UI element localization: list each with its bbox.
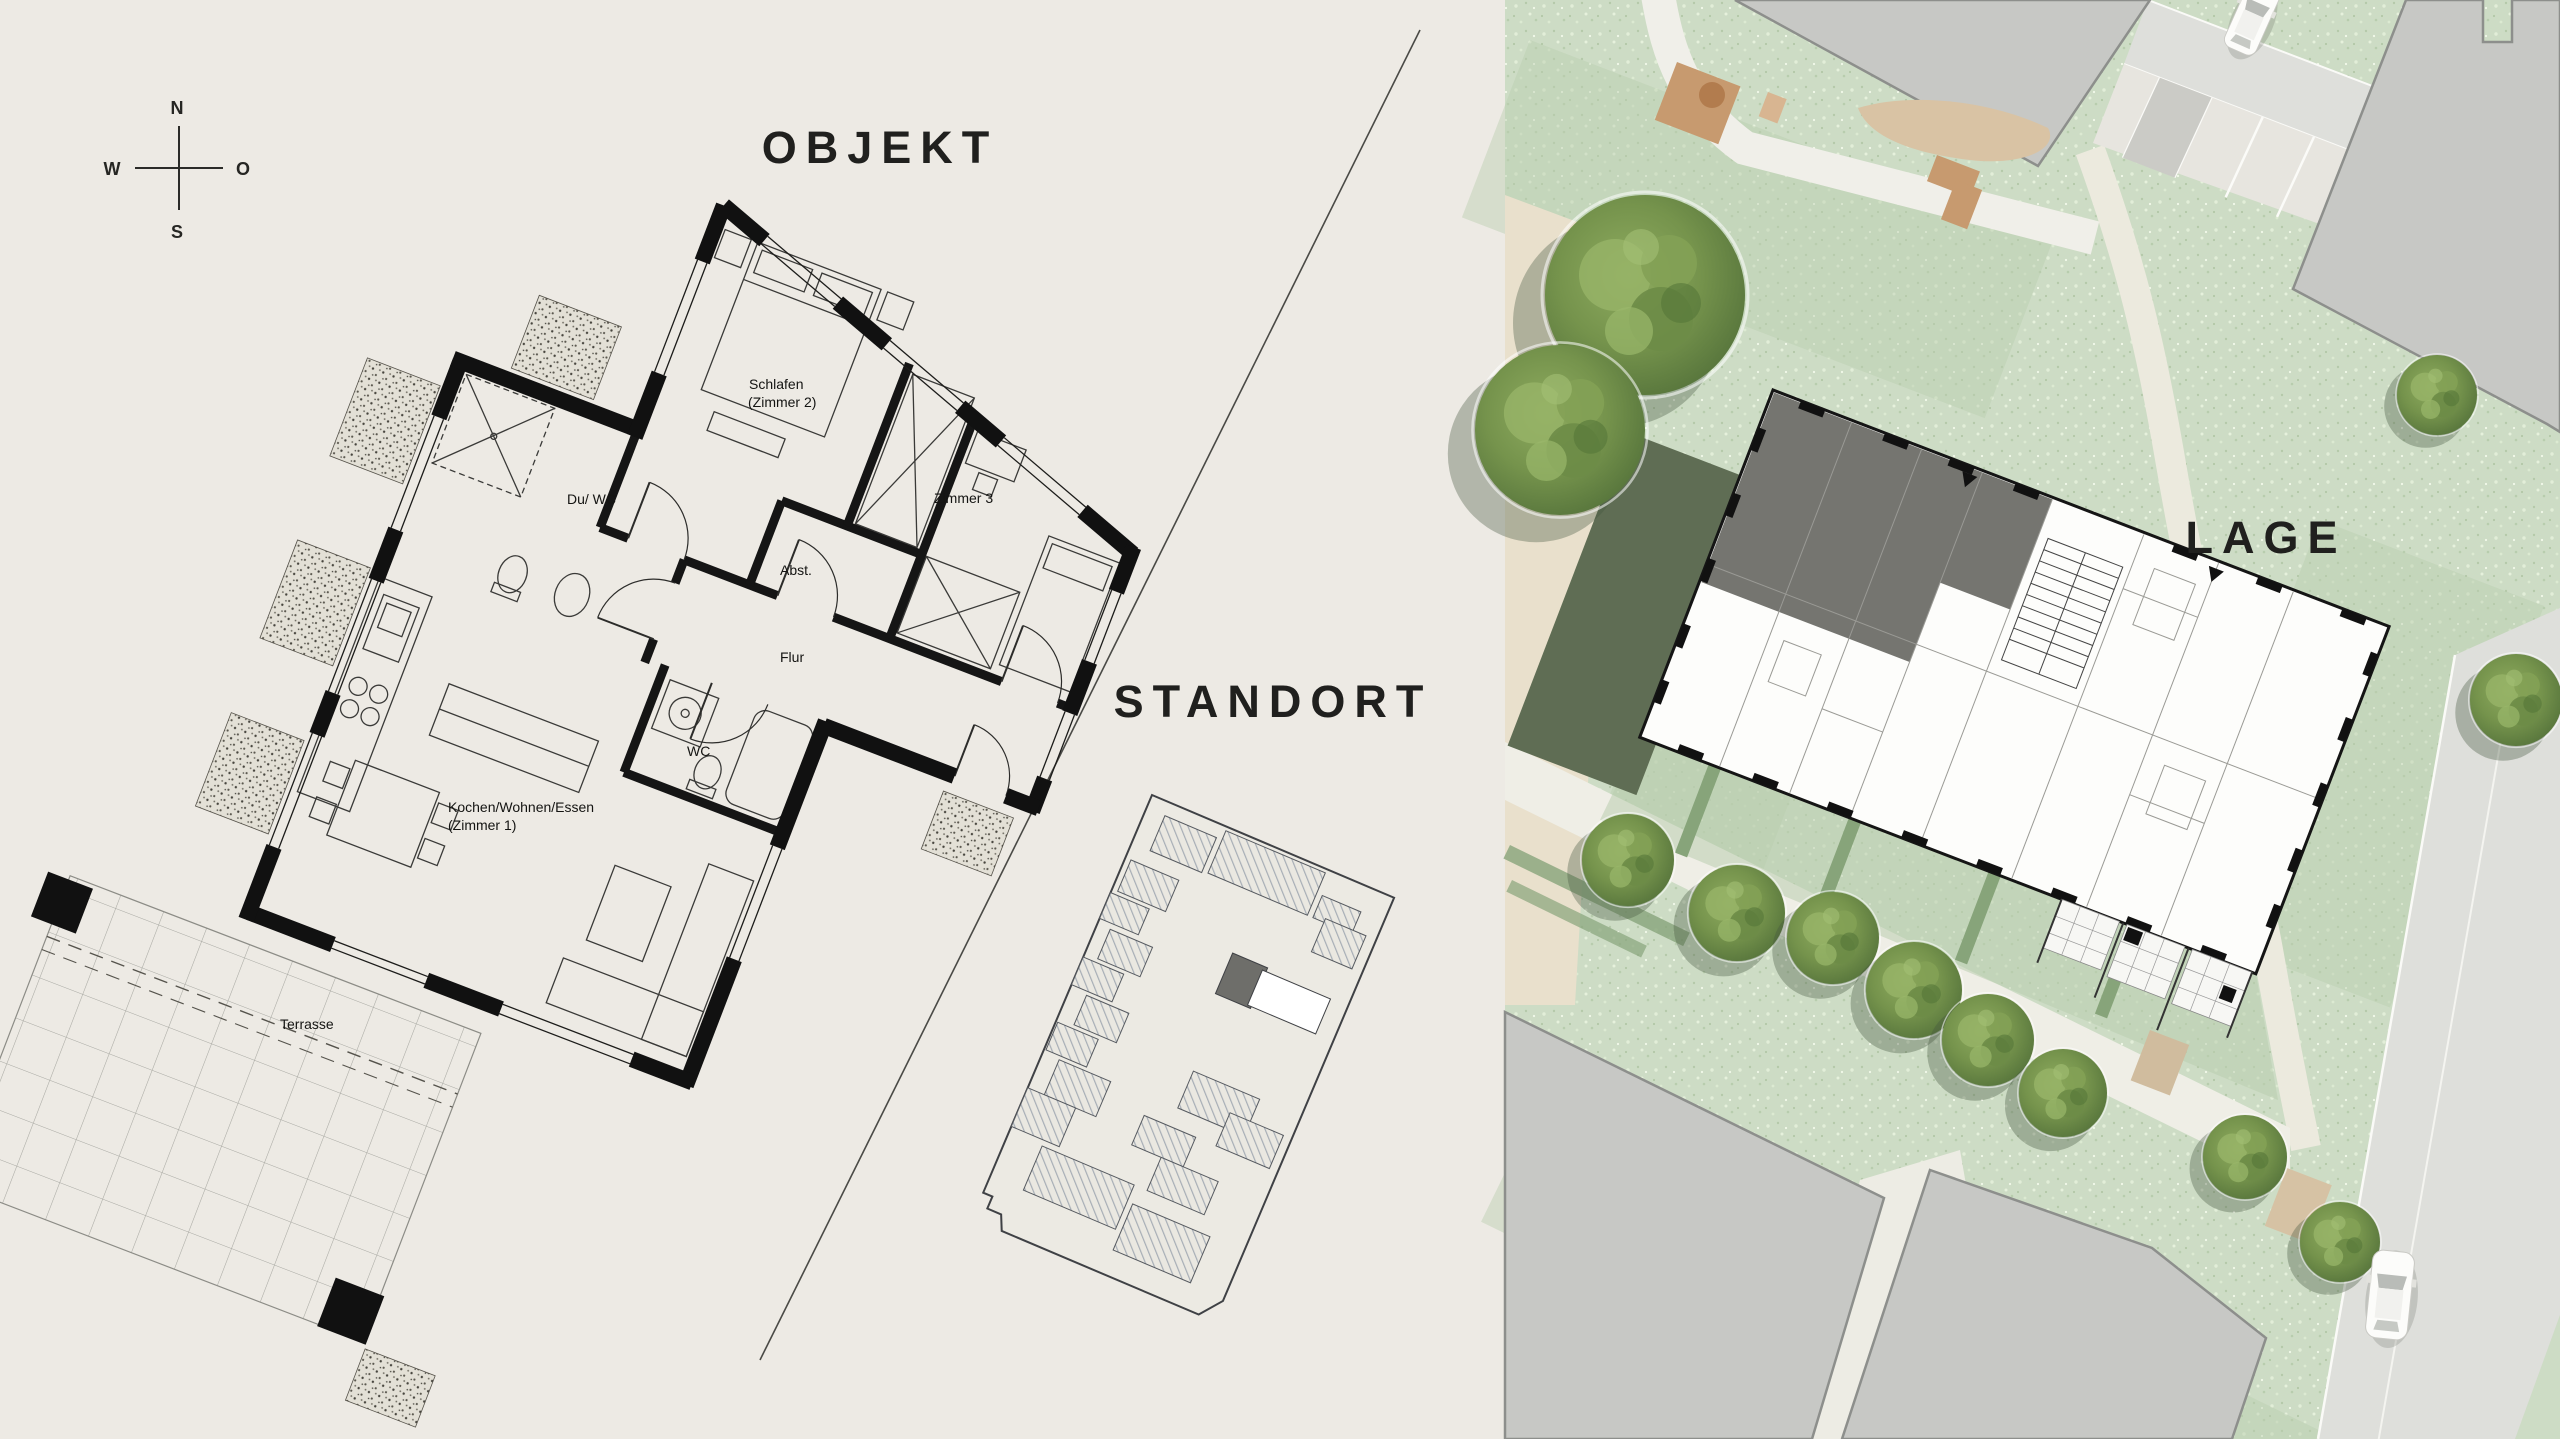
title-standort: STANDORT (1114, 676, 1433, 727)
compass-south-label: S (171, 222, 183, 242)
title-objekt: OBJEKT (762, 122, 999, 173)
room-label-flur: Flur (780, 649, 804, 665)
room-label-duwc: Du/ WC (567, 491, 616, 507)
room-label-wohnen: Kochen/Wohnen/Essen (448, 799, 594, 815)
room-label-wc: WC (687, 743, 710, 759)
architectural-sheet: N W O S OBJEKT STANDORT (0, 0, 2560, 1439)
room-label-schlafen-2: (Zimmer 2) (748, 394, 816, 410)
room-label-schlafen: Schlafen (749, 376, 803, 392)
sheet-canvas: N W O S OBJEKT STANDORT (0, 0, 2560, 1439)
title-lage: LAGE (2185, 512, 2346, 563)
compass-west-label: W (104, 159, 121, 179)
lage-map: LAGE (1448, 0, 2560, 1439)
room-label-wohnen-2: (Zimmer 1) (448, 817, 516, 833)
room-label-abstell: Abst. (780, 562, 812, 578)
room-label-zimmer3: Zimmer 3 (934, 490, 993, 506)
room-label-terrasse: Terrasse (280, 1016, 334, 1032)
compass-north-label: N (171, 98, 184, 118)
compass-east-label: O (236, 159, 250, 179)
